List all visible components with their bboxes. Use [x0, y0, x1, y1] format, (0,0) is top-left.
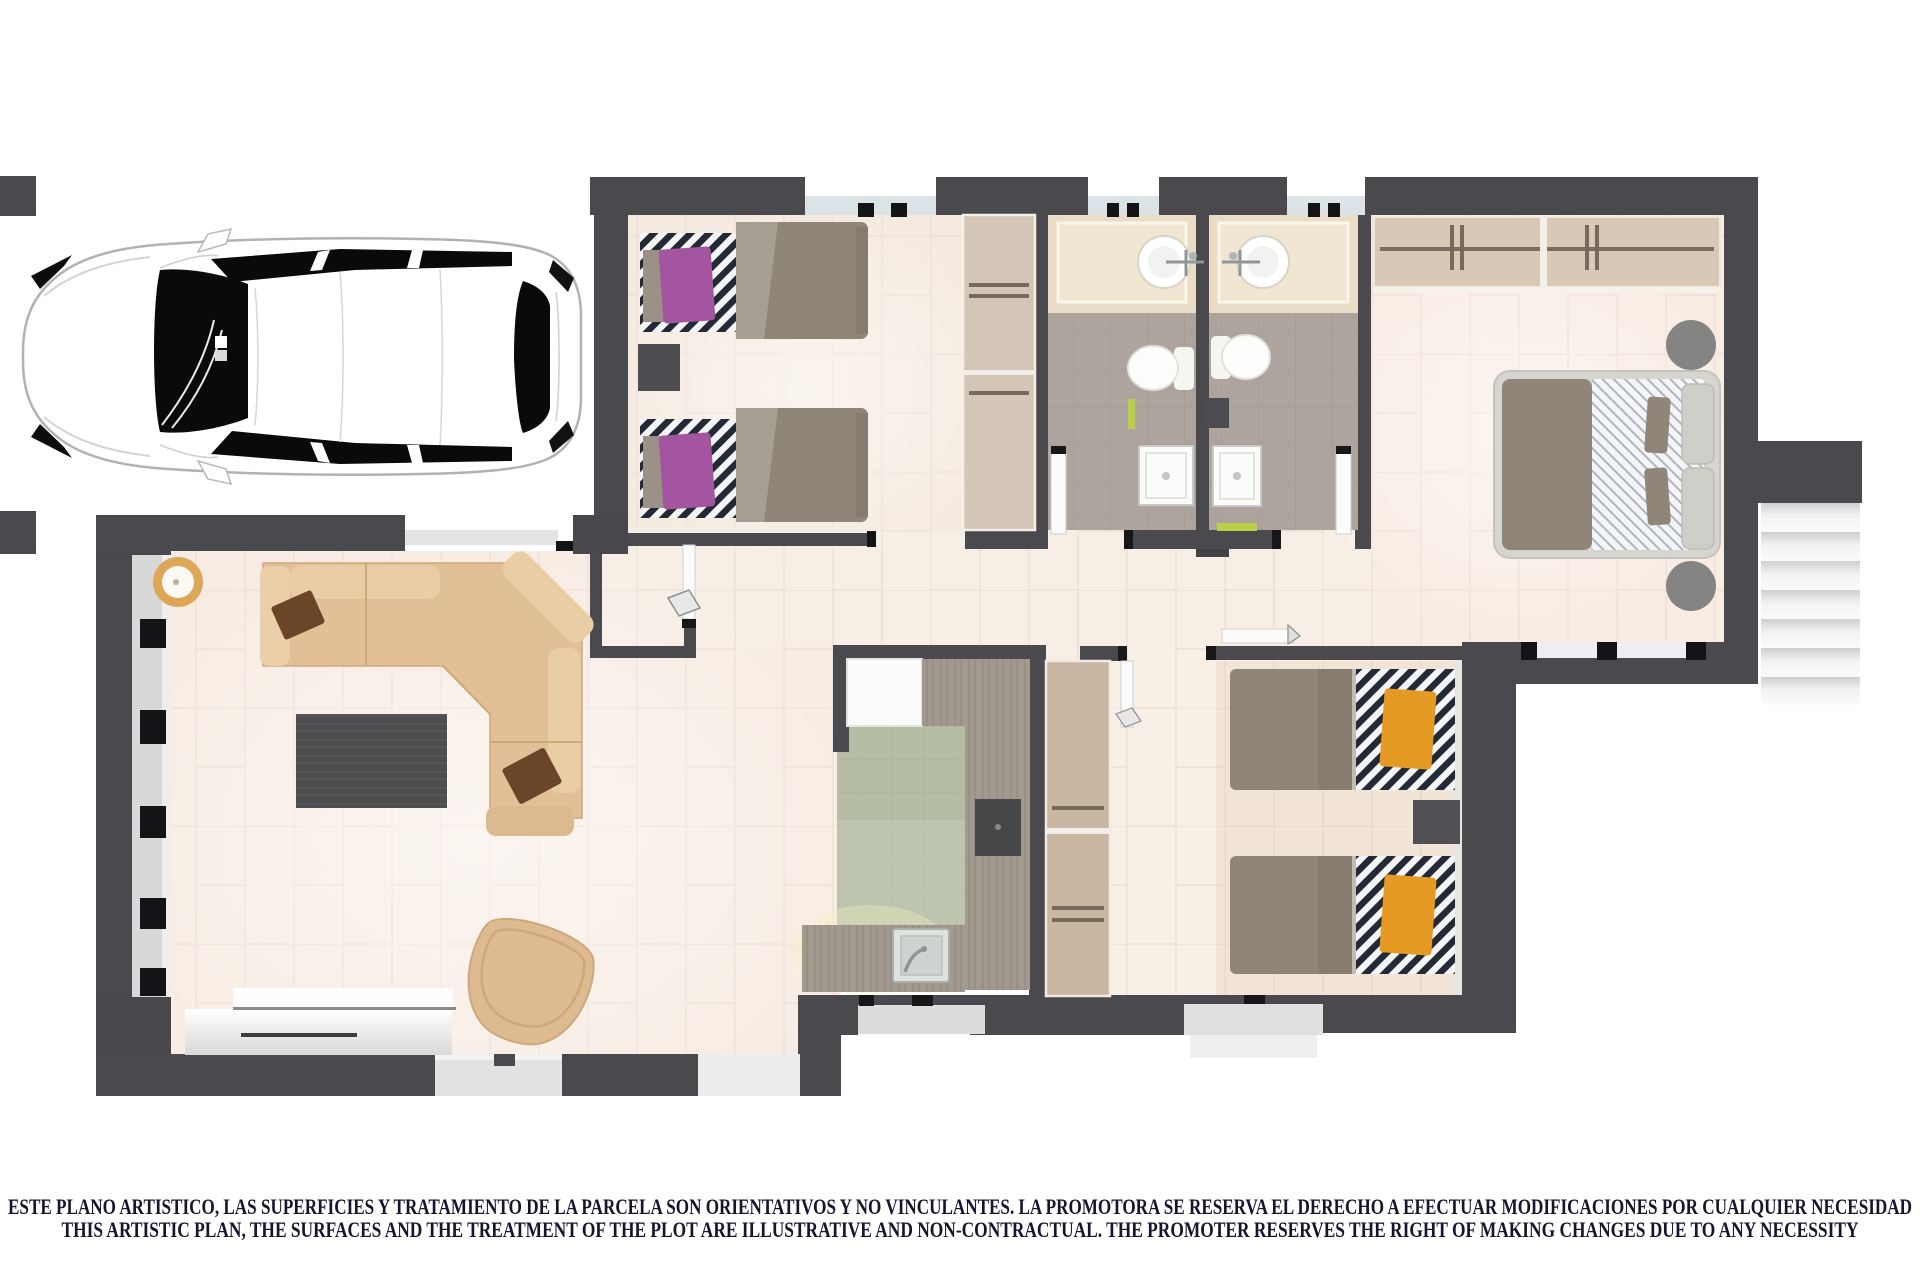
svg-text:ESTE PLANO ARTISTICO, LAS SUPE: ESTE PLANO ARTISTICO, LAS SUPERFICIES Y … [8, 1194, 1912, 1219]
svg-text:THIS ARTISTIC PLAN, THE SURFAC: THIS ARTISTIC PLAN, THE SURFACES AND THE… [62, 1217, 1859, 1242]
